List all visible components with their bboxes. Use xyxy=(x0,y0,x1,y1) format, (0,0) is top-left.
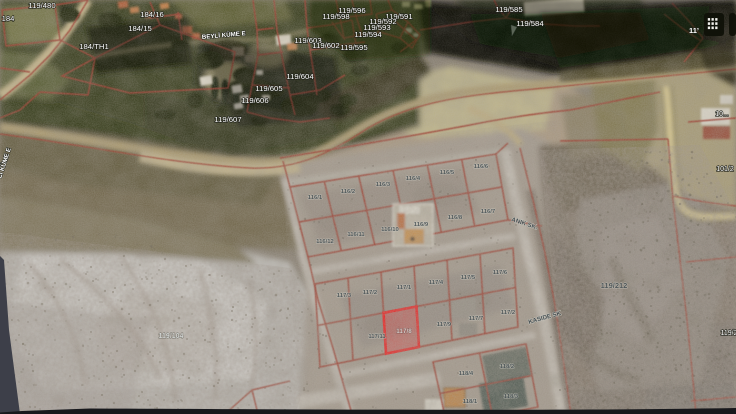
svg-text:11’: 11’ xyxy=(689,26,699,35)
svg-text:117/11: 117/11 xyxy=(368,334,386,340)
svg-text:119/212: 119/212 xyxy=(601,281,628,290)
svg-text:119/584: 119/584 xyxy=(516,19,544,28)
svg-text:118/4: 118/4 xyxy=(459,371,474,377)
svg-text:116/11: 116/11 xyxy=(347,232,365,238)
svg-text:117/5: 117/5 xyxy=(461,275,476,281)
svg-text:117/2: 117/2 xyxy=(363,290,378,296)
svg-text:116/9: 116/9 xyxy=(414,222,429,228)
svg-text:184/16: 184/16 xyxy=(140,10,164,19)
svg-text:118/1: 118/1 xyxy=(463,399,478,405)
svg-text:117/2: 117/2 xyxy=(501,310,516,316)
svg-text:119/585: 119/585 xyxy=(495,5,522,14)
svg-text:184/15: 184/15 xyxy=(128,24,152,33)
svg-text:119/594: 119/594 xyxy=(354,30,382,39)
svg-text:116/2: 116/2 xyxy=(341,189,356,195)
svg-text:117/6: 117/6 xyxy=(493,270,508,276)
svg-text:117/9: 117/9 xyxy=(437,322,452,328)
svg-text:118/2: 118/2 xyxy=(500,364,515,370)
svg-text:116/5: 116/5 xyxy=(440,170,455,176)
svg-text:119/607: 119/607 xyxy=(214,115,241,124)
svg-text:116/6: 116/6 xyxy=(474,164,489,170)
svg-text:119/480: 119/480 xyxy=(28,1,55,10)
svg-text:184: 184 xyxy=(2,14,16,23)
svg-text:119/595: 119/595 xyxy=(340,43,367,52)
svg-text:119/598: 119/598 xyxy=(322,12,349,21)
svg-text:116/1: 116/1 xyxy=(308,195,323,201)
svg-text:116/10: 116/10 xyxy=(381,227,399,233)
svg-text:116/4: 116/4 xyxy=(406,176,421,182)
svg-text:116/12: 116/12 xyxy=(316,239,334,245)
svg-text:119/605: 119/605 xyxy=(255,84,282,93)
svg-text:117/1: 117/1 xyxy=(397,285,412,291)
svg-text:117/3: 117/3 xyxy=(337,293,352,299)
svg-text:119/606: 119/606 xyxy=(241,96,268,105)
svg-text:119/602: 119/602 xyxy=(312,41,339,50)
svg-text:118/3: 118/3 xyxy=(504,394,519,400)
svg-text:116/7: 116/7 xyxy=(481,209,496,215)
svg-text:116/3: 116/3 xyxy=(376,182,391,188)
svg-text:116/8: 116/8 xyxy=(448,215,463,221)
svg-text:101/2: 101/2 xyxy=(716,166,734,173)
svg-text:117/7: 117/7 xyxy=(469,316,484,322)
svg-text:117/4: 117/4 xyxy=(429,280,444,286)
svg-text:184/TH1: 184/TH1 xyxy=(79,42,109,51)
svg-text:10...: 10... xyxy=(715,111,729,118)
svg-text:119/2: 119/2 xyxy=(721,330,736,337)
svg-text:119/604: 119/604 xyxy=(286,72,314,81)
